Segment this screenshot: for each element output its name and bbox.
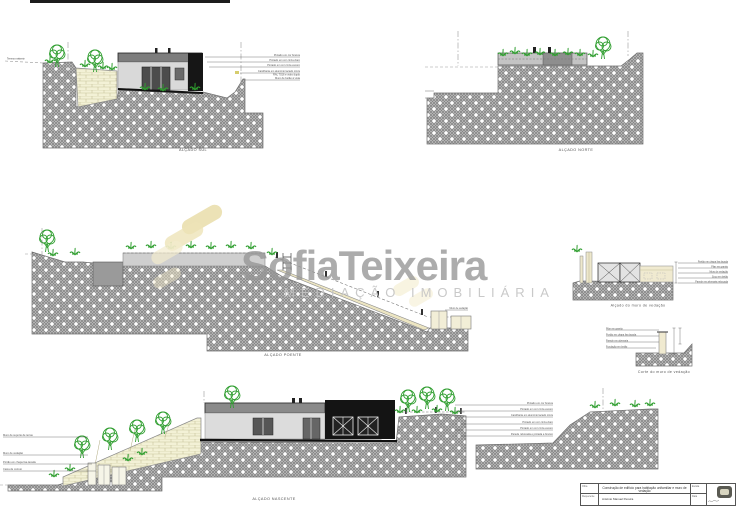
title-block-logo-cell: [707, 484, 735, 505]
svg-text:Soco em betão: Soco em betão: [712, 275, 729, 278]
sheet-frame-bar: [30, 0, 230, 3]
svg-text:Pintado em cor cinza escuro: Pintado em cor cinza escuro: [520, 426, 553, 430]
municipality-logo: [717, 486, 732, 498]
gate-structures-west: [431, 311, 471, 329]
ground-hatch-north: [427, 53, 643, 144]
svg-text:Parede em alvenaria rebocada: Parede em alvenaria rebocada: [695, 280, 728, 283]
fence-section-drawing: Pilar em granito Portão em chapa lisa la…: [598, 320, 736, 378]
fence-section-wall: [657, 328, 682, 354]
svg-text:Caixilharia em alumínio lacado: Caixilharia em alumínio lacado cinza: [511, 413, 554, 417]
svg-text:Portão em chapa lisa lacada: Portão em chapa lisa lacada: [606, 333, 637, 336]
svg-text:Caixilharia em alumínio lacado: Caixilharia em alumínio lacado cinza: [258, 69, 301, 73]
elevation-south-drawing: Terreno existente Pintado em cor branca …: [5, 30, 305, 160]
client-name: António Manuel Pereira: [599, 494, 690, 505]
fence-wall: [580, 252, 678, 283]
svg-text:Portão em chapa lisa lacada: Portão em chapa lisa lacada: [3, 460, 36, 464]
svg-text:Fundação em betão: Fundação em betão: [606, 345, 628, 348]
label-alcado-sul: ALÇADO SUL: [179, 148, 207, 152]
label-alcado-norte: ALÇADO NORTE: [559, 148, 594, 152]
svg-text:Pintado em cor branca: Pintado em cor branca: [274, 53, 301, 57]
svg-text:Portão em chapa lisa lacada: Portão em chapa lisa lacada: [698, 260, 729, 263]
fence-elevation-drawing: Portão em chapa lisa lacada Pilar em gra…: [570, 238, 736, 312]
annotations-fence: Portão em chapa lisa lacada Pilar em gra…: [695, 260, 728, 283]
svg-text:Pintado em cor branca: Pintado em cor branca: [527, 401, 554, 405]
house-east: [200, 398, 397, 441]
escala-label: Escala: [691, 484, 706, 494]
obra-label: Obra: [581, 484, 598, 494]
svg-text:Parede em alvenaria: Parede em alvenaria: [606, 339, 629, 342]
svg-text:Pilar em granito: Pilar em granito: [711, 265, 728, 268]
annotations-east-left: Muro de suporte de terras Muro de vedaçã…: [3, 433, 36, 471]
requerente-label: Requerente: [581, 494, 598, 505]
svg-text:Caixa de correio: Caixa de correio: [3, 467, 22, 471]
roof-band-north: [498, 47, 587, 65]
annotations-south: Pintado em cor branca Pintado em cor cin…: [258, 53, 301, 80]
watermark-tagline-text: MEDIAÇÃO IMOBILIÁRIA: [284, 286, 555, 299]
svg-text:Pilar em granito: Pilar em granito: [606, 327, 623, 330]
svg-text:Pintado em cor cinza claro: Pintado em cor cinza claro: [522, 420, 553, 424]
title-block: Obra Requerente Construção de edifício p…: [580, 483, 736, 506]
ground-hatch-fence: [573, 281, 673, 300]
drawing-sheet: Terreno existente Pintado em cor branca …: [0, 0, 736, 506]
svg-text:Muro de vedação: Muro de vedação: [710, 270, 729, 273]
title-block-fields: Escala Data: [691, 484, 707, 505]
signature-scribble: [708, 498, 720, 504]
title-block-labels: Obra Requerente: [581, 484, 599, 505]
svg-text:Muro de betão à vista: Muro de betão à vista: [275, 76, 301, 80]
reference-lines-west: [25, 228, 42, 255]
svg-text:Pintado em cor cinza escuro: Pintado em cor cinza escuro: [520, 407, 553, 411]
label-alcado-nascente: ALÇADO NASCENTE: [252, 497, 295, 501]
project-title: Construção de edifício para habitação un…: [599, 484, 690, 494]
terrain-note: Terreno existente: [7, 58, 25, 61]
annotations-east-right: Pintado em cor branca Pintado em cor cin…: [511, 401, 554, 436]
label-muro-corte: Corte do muro de vedação: [638, 370, 690, 374]
elevation-north-drawing: ALÇADO NORTE: [425, 28, 660, 163]
elevation-east-drawing: Muro de suporte de terras Muro de vedaçã…: [0, 385, 680, 506]
fence-plant: [572, 245, 582, 252]
svg-text:Muro de vedação: Muro de vedação: [3, 451, 24, 455]
data-label: Data: [691, 494, 706, 505]
house-south: [118, 48, 203, 93]
annotations-fence-section: Pilar em granito Portão em chapa lisa la…: [606, 327, 637, 348]
annotation-west: Muro de vedação: [450, 307, 469, 310]
svg-text:RAL 7016 e vidro duplo: RAL 7016 e vidro duplo: [273, 73, 301, 77]
svg-text:Pintado em cor cinza escuro: Pintado em cor cinza escuro: [267, 63, 300, 67]
svg-text:Pintado em cor cinza claro: Pintado em cor cinza claro: [269, 58, 300, 62]
svg-text:Parede rebocada e pintada a br: Parede rebocada e pintada a branco: [511, 432, 554, 436]
label-alcado-poente: ALÇADO POENTE: [264, 353, 302, 357]
watermark-brand-text: SofiaTeixeira: [241, 245, 486, 287]
title-block-main: Construção de edifício para habitação un…: [599, 484, 691, 505]
label-muro-alcado: Alçado do muro de vedação: [611, 304, 666, 308]
svg-text:Muro de suporte de terras: Muro de suporte de terras: [3, 433, 34, 437]
